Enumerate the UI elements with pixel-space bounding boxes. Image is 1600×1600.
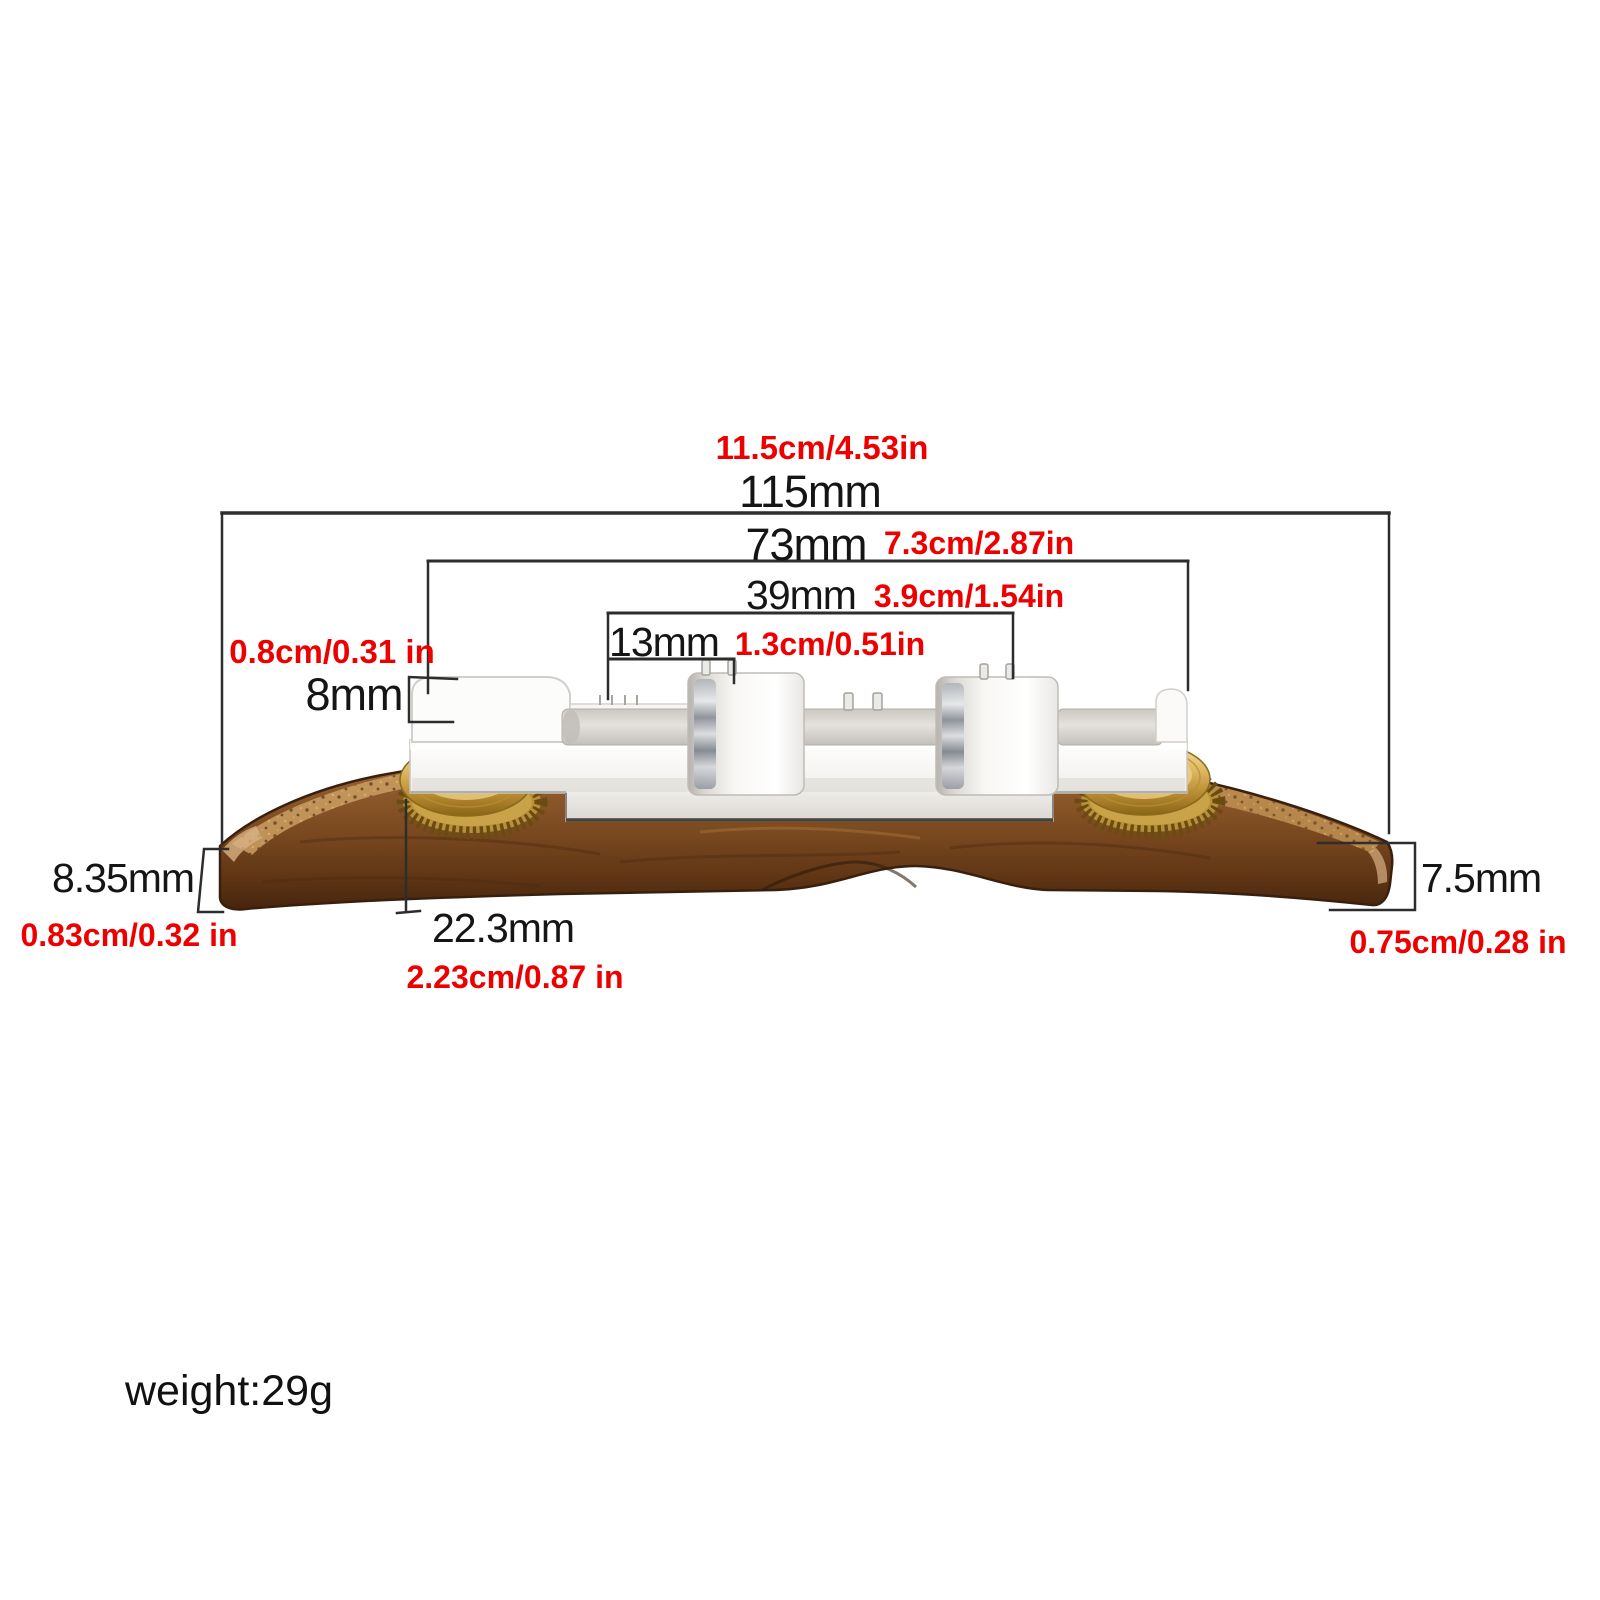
dim-8mm-label: 8mm [306,672,403,717]
dim-13mm-label: 13mm [609,622,719,663]
dim-39mm-label: 39mm [746,575,856,616]
dim-13mm-cm-label: 1.3cm/0.51in [735,628,925,660]
dim-73mm-cm-label: 7.3cm/2.87in [884,527,1074,559]
weight-label: weight:29g [125,1367,333,1416]
dim-115mm-cm-label: 11.5cm/4.53in [716,431,929,464]
dim-22.3mm-label: 22.3mm [432,908,574,949]
dim-73mm-label: 73mm [745,522,866,567]
bridge-photo [0,0,1600,1600]
dim-8mm-cm-label: 0.8cm/0.31 in [229,635,434,668]
dim-115mm-label: 115mm [739,469,881,514]
dim-39mm-cm-label: 3.9cm/1.54in [874,580,1064,612]
dim-8.35mm-cm-label: 0.83cm/0.32 in [20,919,237,951]
dim-7.5mm-label: 7.5mm [1421,858,1541,899]
product-dimension-diagram: 11.5cm/4.53in 115mm 73mm 7.3cm/2.87in 39… [0,0,1600,1600]
dim-7.5mm-cm-label: 0.75cm/0.28 in [1349,926,1566,958]
dim-8.35mm-label: 8.35mm [52,858,194,899]
dim-22.3mm-cm-label: 2.23cm/0.87 in [406,961,623,993]
